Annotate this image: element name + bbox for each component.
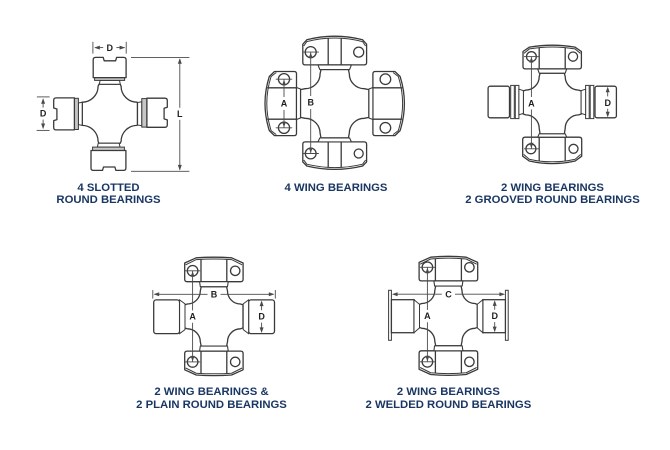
svg-text:B: B: [307, 98, 314, 108]
svg-text:D: D: [107, 43, 114, 53]
svg-text:L: L: [177, 109, 183, 119]
svg-text:D: D: [258, 312, 265, 322]
svg-text:C: C: [445, 289, 452, 299]
svg-text:D: D: [491, 311, 498, 321]
svg-text:A: A: [281, 99, 288, 109]
svg-text:A: A: [528, 98, 535, 108]
svg-text:A: A: [189, 312, 196, 322]
svg-text:D: D: [40, 109, 47, 119]
svg-text:D: D: [604, 98, 611, 108]
svg-text:A: A: [424, 311, 431, 321]
svg-text:B: B: [211, 290, 218, 300]
